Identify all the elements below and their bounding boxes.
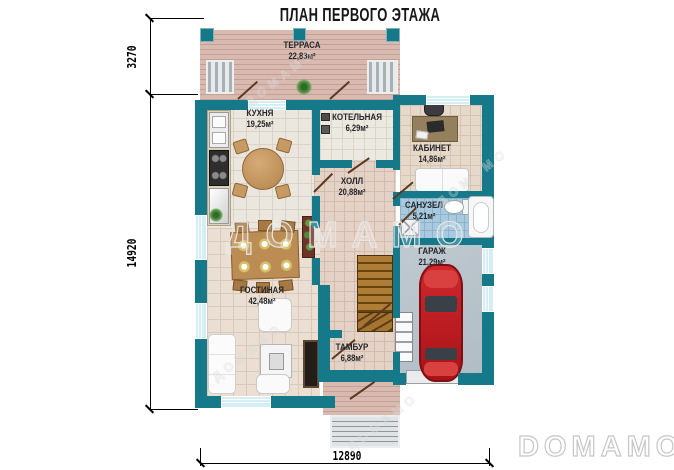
car-icon bbox=[419, 264, 463, 382]
room-label-boiler: КОТЕЛЬНАЯ 6,29м² bbox=[315, 112, 399, 134]
dim-line-terrace bbox=[150, 18, 151, 95]
plant-icon bbox=[296, 79, 312, 95]
room-name: САНУЗЕЛ bbox=[382, 200, 466, 211]
page-title: ПЛАН ПЕРВОГО ЭТАЖА bbox=[259, 5, 461, 26]
entry-steps bbox=[330, 415, 400, 448]
wall-kitchen-stub bbox=[312, 196, 320, 228]
room-name: КОТЕЛЬНАЯ bbox=[315, 112, 399, 123]
car-trunk bbox=[424, 362, 458, 376]
plant-icon bbox=[209, 208, 223, 222]
dining-chair bbox=[234, 221, 249, 233]
room-name: КАБИНЕТ bbox=[390, 143, 474, 154]
laptop-icon bbox=[426, 120, 444, 133]
domamo-logo: DOMAMO bbox=[518, 431, 668, 464]
window-garage-east-2 bbox=[482, 286, 494, 312]
room-name: ТЕРРАСА bbox=[260, 40, 344, 51]
wall-boiler-south-a bbox=[320, 160, 352, 168]
papers-icon bbox=[416, 130, 429, 140]
room-name: ГАРАЖ bbox=[390, 246, 474, 257]
terrace-column bbox=[200, 28, 214, 42]
dim-house-width: 12890 bbox=[321, 449, 372, 463]
room-label-vestibule: ТАМБУР 6,88м² bbox=[310, 342, 394, 364]
dim-ext-bottom bbox=[150, 409, 198, 410]
terrace-column bbox=[386, 28, 400, 42]
dim-ext-top bbox=[150, 18, 204, 19]
bathtub-basin bbox=[473, 202, 489, 233]
room-name: КУХНЯ bbox=[218, 108, 302, 119]
car-windshield bbox=[425, 296, 457, 312]
room-name: ГОСТИНАЯ bbox=[220, 285, 304, 296]
wall-wing-left-c bbox=[393, 226, 400, 318]
bathtub-icon bbox=[468, 196, 494, 238]
room-label-bathroom: САНУЗЕЛ 5,21м² bbox=[382, 200, 466, 222]
dim-terrace-depth: 3270 bbox=[125, 37, 139, 77]
stove-icon bbox=[209, 150, 229, 186]
office-sofa bbox=[415, 168, 469, 192]
room-area: 19,25м² bbox=[218, 119, 302, 130]
window-living-west-2 bbox=[195, 303, 207, 339]
floor-plan-canvas: ПЛАН ПЕРВОГО ЭТАЖА 3270 14920 12890 bbox=[0, 0, 674, 470]
sink-basin bbox=[212, 132, 226, 144]
room-label-living: ГОСТИНАЯ 42,48м² bbox=[220, 285, 304, 307]
room-name: ТАМБУР bbox=[310, 342, 394, 353]
room-area: 42,48м² bbox=[220, 296, 304, 307]
room-area: 22,83м² bbox=[260, 51, 344, 62]
coffee-table-inset bbox=[269, 353, 284, 370]
room-label-kitchen: КУХНЯ 19,25м² bbox=[218, 108, 302, 130]
room-name: ХОЛЛ bbox=[310, 176, 394, 187]
room-label-garage: ГАРАЖ 21,29м² bbox=[390, 246, 474, 268]
car-hood bbox=[424, 270, 458, 288]
wall-vestibule-top bbox=[318, 330, 342, 338]
window-living-west-1 bbox=[195, 215, 207, 260]
dim-house-length: 14920 bbox=[125, 228, 139, 278]
window-office-north bbox=[426, 95, 470, 105]
dim-ext-mid bbox=[150, 94, 198, 95]
wall-hall-stub bbox=[312, 258, 320, 285]
terrace-side-steps-right bbox=[367, 60, 398, 94]
room-area: 6,29м² bbox=[315, 123, 399, 134]
dim-line-house-length bbox=[150, 95, 151, 410]
terrace-side-steps-left bbox=[206, 60, 234, 94]
armchair bbox=[256, 374, 290, 394]
window-garage-east-1 bbox=[482, 248, 494, 274]
office-desk bbox=[412, 116, 458, 142]
dining-chair bbox=[280, 220, 295, 233]
wall-garage-bottom-right bbox=[458, 373, 494, 385]
room-area: 6,88м² bbox=[310, 353, 394, 364]
wall-garage-bottom-left bbox=[393, 373, 406, 385]
dining-table bbox=[230, 230, 300, 280]
room-area: 5,21м² bbox=[382, 211, 466, 222]
room-label-hall: ХОЛЛ 20,88м² bbox=[310, 176, 394, 198]
wall-bottom-vestibule bbox=[318, 370, 400, 382]
dining-chair bbox=[258, 220, 272, 231]
room-area: 20,88м² bbox=[310, 187, 394, 198]
coffee-table bbox=[260, 344, 292, 378]
room-area: 21,29м² bbox=[390, 257, 474, 268]
car-rear-window bbox=[425, 348, 457, 360]
dim-line-house-width bbox=[200, 463, 490, 464]
wall-bathroom-garage bbox=[400, 238, 484, 245]
window-living-south bbox=[221, 396, 271, 408]
room-label-terrace: ТЕРРАСА 22,83м² bbox=[260, 40, 344, 62]
room-label-office: КАБИНЕТ 14,86м² bbox=[390, 143, 474, 165]
kitchen-round-table bbox=[242, 148, 284, 190]
room-area: 14,86м² bbox=[390, 154, 474, 165]
living-sofa bbox=[208, 334, 236, 394]
